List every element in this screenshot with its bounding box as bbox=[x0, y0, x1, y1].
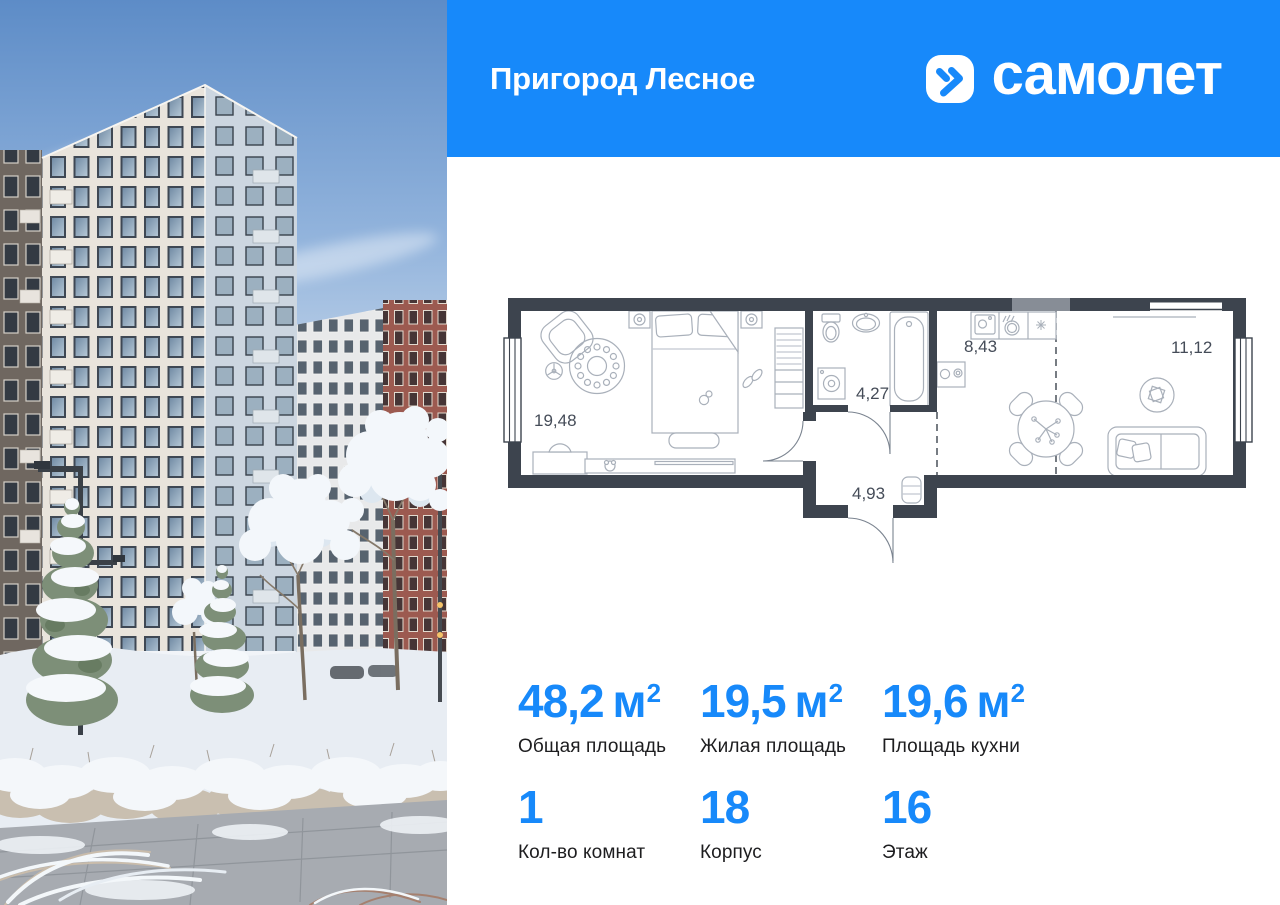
furniture bbox=[533, 306, 1206, 503]
stat-rooms-label: Кол-во комнат bbox=[518, 842, 700, 864]
building-photo bbox=[0, 0, 447, 905]
bedroom-area-label: 19,48 bbox=[534, 411, 577, 430]
stat-total-area-value: 48,2м2 bbox=[518, 678, 700, 724]
samolet-logo: самолет bbox=[926, 55, 1222, 103]
stats-row-areas: 48,2м2 Общая площадь 19,5м2 Жилая площад… bbox=[518, 678, 1064, 758]
stat-kitchen-area-value: 19,6м2 bbox=[882, 678, 1064, 724]
stat-living-area-label: Жилая площадь bbox=[700, 736, 882, 758]
stat-total-area: 48,2м2 Общая площадь bbox=[518, 678, 700, 758]
samolet-logo-icon bbox=[926, 55, 974, 103]
stat-living-area-value: 19,5м2 bbox=[700, 678, 882, 724]
hallway-area-label: 4,93 bbox=[852, 484, 885, 503]
info-panel: Пригород Лесное самолет bbox=[447, 0, 1280, 905]
stats-row-details: 1 Кол-во комнат 18 Корпус 16 Этаж bbox=[518, 784, 1064, 864]
floor-plan-drawing: 19,48 4,27 8,43 11,12 4,93 bbox=[500, 290, 1260, 575]
stat-floor-label: Этаж bbox=[882, 842, 1064, 864]
stat-floor-value: 16 bbox=[882, 784, 1064, 830]
header-banner: Пригород Лесное самолет bbox=[447, 0, 1280, 157]
stat-rooms: 1 Кол-во комнат bbox=[518, 784, 700, 864]
stat-kitchen-area: 19,6м2 Площадь кухни bbox=[882, 678, 1064, 758]
stat-rooms-value: 1 bbox=[518, 784, 700, 830]
stat-kitchen-area-label: Площадь кухни bbox=[882, 736, 1064, 758]
winter-scene-illustration bbox=[0, 0, 447, 905]
stat-living-area: 19,5м2 Жилая площадь bbox=[700, 678, 882, 758]
stat-building: 18 Корпус bbox=[700, 784, 882, 864]
stat-building-value: 18 bbox=[700, 784, 882, 830]
project-title: Пригород Лесное bbox=[490, 61, 755, 97]
floor-plan: 19,48 4,27 8,43 11,12 4,93 bbox=[500, 290, 1260, 575]
stat-total-area-label: Общая площадь bbox=[518, 736, 700, 758]
stat-building-label: Корпус bbox=[700, 842, 882, 864]
listing-card: Пригород Лесное самолет bbox=[0, 0, 1280, 905]
stat-floor: 16 Этаж bbox=[882, 784, 1064, 864]
living-area-label: 11,12 bbox=[1171, 338, 1212, 357]
samolet-logo-text: самолет bbox=[992, 51, 1222, 99]
bathroom-area-label: 4,27 bbox=[856, 384, 889, 403]
kitchen-area-label: 8,43 bbox=[964, 337, 997, 356]
